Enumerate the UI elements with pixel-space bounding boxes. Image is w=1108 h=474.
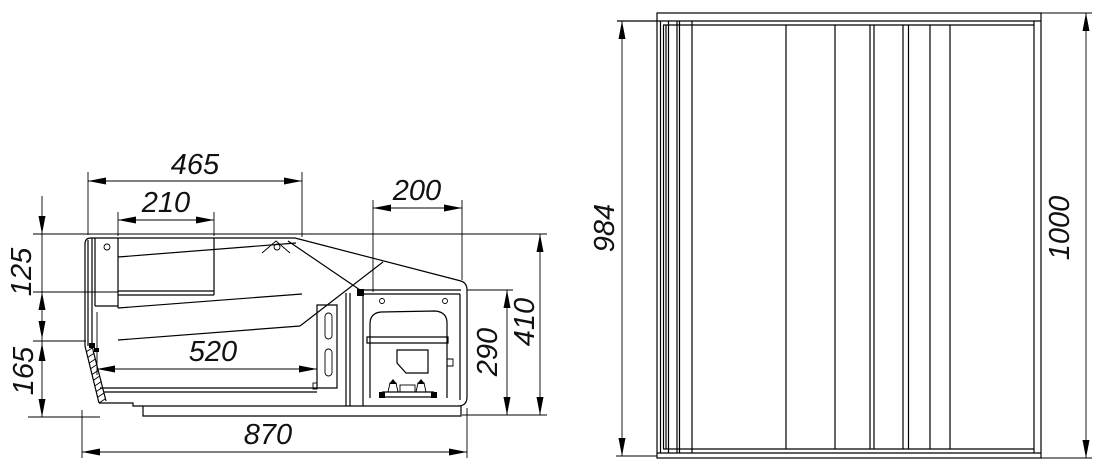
grille-slot bbox=[325, 313, 332, 339]
dimension-984: 984 bbox=[589, 21, 626, 456]
dimension-465: 465 bbox=[88, 149, 302, 237]
dim-label-870: 870 bbox=[244, 419, 292, 451]
dim-label-410: 410 bbox=[509, 298, 541, 346]
side-view: 465 210 200 125 165 bbox=[6, 149, 547, 458]
dim-label-210: 210 bbox=[141, 187, 190, 219]
dim-label-984: 984 bbox=[589, 204, 621, 252]
dimension-210: 210 bbox=[118, 187, 214, 236]
display-case-dimension-drawing: 465 210 200 125 165 bbox=[0, 0, 1108, 474]
air-duct bbox=[100, 262, 383, 392]
bumper-hatch bbox=[85, 343, 106, 403]
dimension-520: 520 bbox=[97, 312, 317, 375]
screw-hole-icon bbox=[104, 244, 110, 250]
dimension-200: 200 bbox=[373, 175, 462, 292]
dimension-165: 165 bbox=[8, 320, 100, 417]
front-view: 984 1000 bbox=[589, 13, 1092, 458]
dim-label-465: 465 bbox=[171, 149, 220, 181]
hinge-detail bbox=[94, 348, 99, 352]
pipe-stub bbox=[447, 359, 453, 366]
dimension-125: 125 bbox=[6, 196, 547, 330]
mount-bolt bbox=[431, 392, 437, 398]
dimension-410: 410 bbox=[509, 234, 544, 415]
grille-slot bbox=[325, 349, 332, 376]
dim-label-1000: 1000 bbox=[1044, 196, 1076, 261]
terminal-box bbox=[397, 350, 428, 373]
ventilation-grille bbox=[313, 289, 364, 406]
dimension-1000: 1000 bbox=[1044, 13, 1090, 458]
dim-label-290: 290 bbox=[472, 328, 504, 377]
hinge-detail bbox=[89, 343, 95, 348]
dim-label-165: 165 bbox=[8, 346, 40, 395]
screw-hole-icon bbox=[380, 299, 385, 304]
dim-label-125: 125 bbox=[6, 247, 38, 296]
cabinet-outline bbox=[657, 13, 1041, 458]
bracket bbox=[262, 241, 290, 253]
compressor bbox=[367, 311, 453, 398]
dim-label-200: 200 bbox=[392, 175, 441, 207]
machine-bay bbox=[363, 290, 461, 406]
mount-bolt bbox=[379, 392, 385, 398]
dim-label-520: 520 bbox=[189, 336, 237, 368]
technical-drawing-page: 465 210 200 125 165 bbox=[0, 0, 1108, 474]
screw-hole-icon bbox=[443, 299, 448, 304]
panel-seams bbox=[661, 21, 1035, 453]
canopy bbox=[104, 238, 363, 295]
